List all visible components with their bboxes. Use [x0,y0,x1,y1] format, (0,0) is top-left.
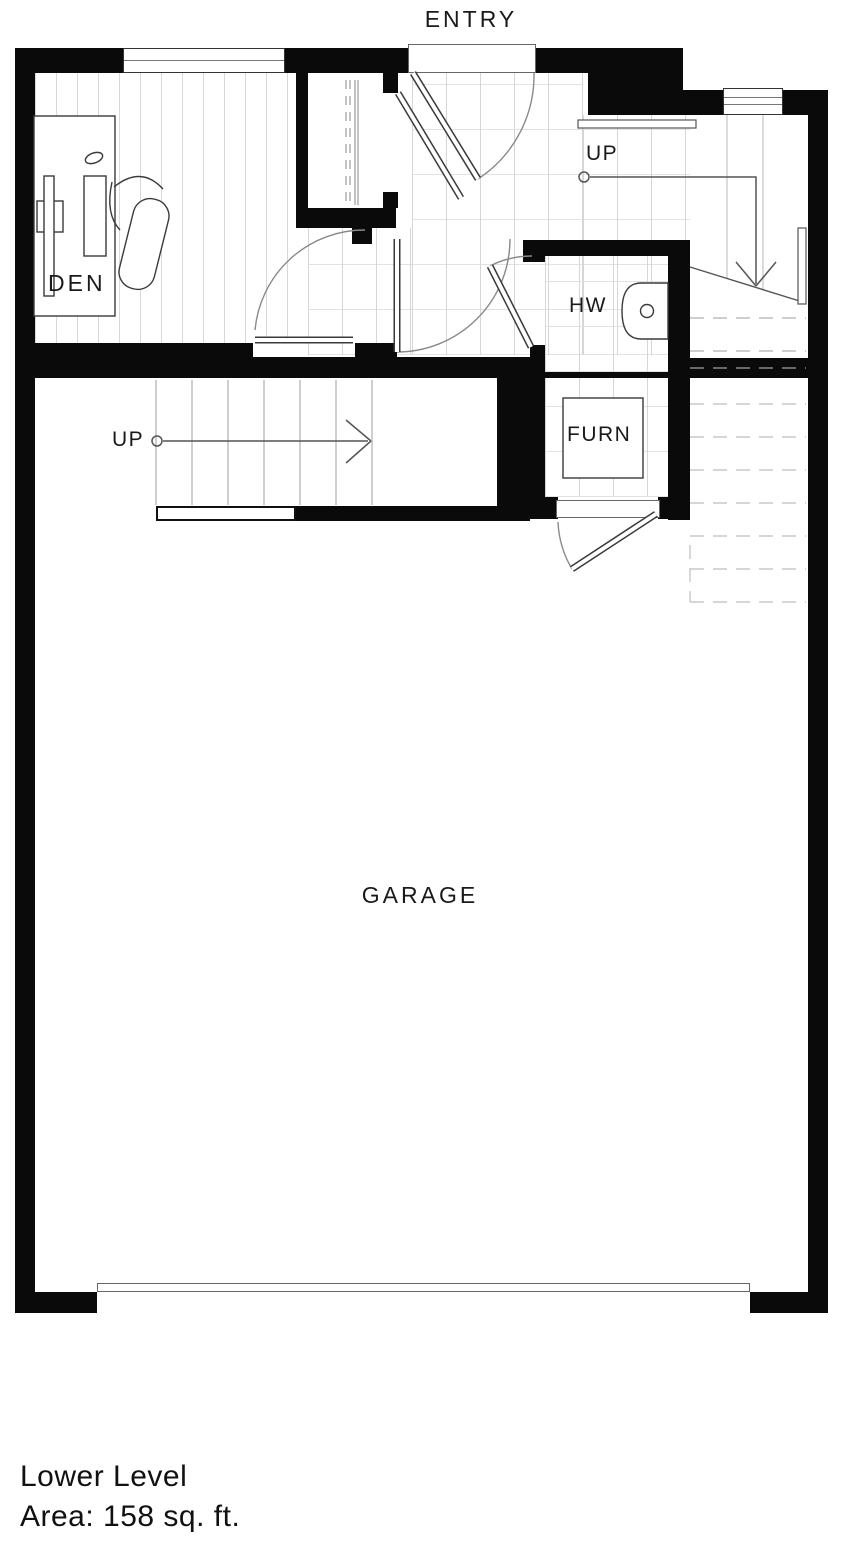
chair-seat [115,195,172,293]
floor-plan: ENTRY DEN UP HW FURN UP GARAGE Lower Lev… [0,0,849,1563]
hall-shelf [578,120,696,128]
entry-label: ENTRY [410,6,532,33]
plan-area: Area: 158 sq. ft. [20,1500,240,1534]
plan-title: Lower Level [20,1460,187,1494]
chair-back [114,176,163,189]
garage-up-label: UP [112,428,144,452]
hw-door [490,256,532,347]
water-heater [622,283,668,339]
hall-up-label: UP [586,142,618,166]
garage-label: GARAGE [350,882,490,909]
closet-rod-shelf [346,80,358,205]
closet-door [398,93,461,198]
office-chair [110,176,173,293]
desk-keyboard [84,176,106,256]
garage-stair [156,380,372,505]
den-label: DEN [48,270,106,297]
hall-up-arrow [579,172,776,286]
hall-door [397,239,510,352]
den-door [255,230,365,340]
furn-label: FURN [567,423,631,447]
plan-linework [0,0,849,1563]
furn-door [558,514,656,569]
hw-label: HW [569,294,607,318]
handrail [798,228,806,304]
garage-up-arrow [152,420,371,463]
entry-door [413,73,534,179]
overhead-stair-dashed [690,368,806,602]
